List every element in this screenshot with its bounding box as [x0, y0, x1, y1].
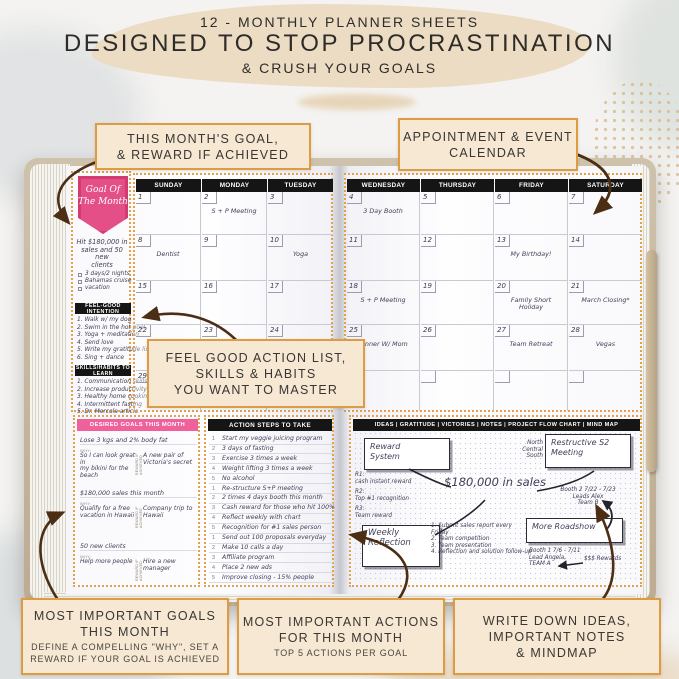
calendar-cell: 26 — [421, 325, 494, 371]
reward-line: Bahamas cruise — [78, 278, 132, 285]
skills-title: SKILLS/HABITS TO LEARN — [75, 365, 131, 377]
calendar-cell: 15 — [136, 281, 201, 325]
goal-of-month-ribbon: Goal Of The Month — [78, 176, 128, 234]
goal-of-month-label: Goal Of The Month — [78, 184, 128, 208]
feel-good-item: 2. Swim in the hot pool — [77, 325, 132, 333]
calendar-cell: 10Yoga — [268, 235, 333, 281]
action-step-row: 5Recognition for #1 sales person — [209, 524, 333, 534]
calendar-cell: 18S + P Meeting — [347, 281, 420, 325]
reward-line-text: Bahamas cruise — [85, 278, 131, 285]
calendar-cell: 16 — [202, 281, 267, 325]
calendar-date: 26 — [421, 325, 436, 337]
calendar-cell: 21March Closing* — [569, 281, 642, 325]
callout-most-important-goals-sub: DEFINE A COMPELLING "WHY", SET A REWARD … — [30, 642, 220, 665]
action-step-text: Cash reward for those who hit 100% — [222, 504, 335, 511]
header-line2: DESIGNED TO STOP PROCRASTINATION — [0, 30, 679, 58]
action-step-number: 4 — [212, 565, 215, 571]
action-step-number: 2 — [212, 545, 215, 551]
skills-item: 1. Communication skills — [77, 379, 132, 387]
calendar-date: 11 — [347, 235, 362, 247]
action-step-text: No alcohol — [222, 475, 255, 482]
calendar-cell: 7 — [569, 192, 642, 235]
goal-reward-list: 3 days/2 nightsBahamas cruisevacation — [78, 271, 132, 293]
calendar-date: 12 — [421, 235, 436, 247]
skills-item: 4. Intermittent fasting — [77, 402, 132, 410]
feel-good-title: FEEL-GOOD INTENTION — [75, 303, 131, 315]
calendar-cell: 43 Day Booth — [347, 192, 420, 235]
callout-most-important-actions: MOST IMPORTANT ACTIONS FOR THIS MONTH TO… — [237, 598, 445, 675]
action-step-number: 3 — [212, 505, 215, 511]
calendar-note: My Birthday! — [496, 251, 566, 258]
action-step-number: 5 — [212, 525, 215, 531]
callout-most-important-goals-title: MOST IMPORTANT GOALS THIS MONTH — [34, 608, 216, 640]
action-step-row: 3Exercise 3 times a week — [209, 455, 333, 465]
action-step-row: 2Make 10 calls a day — [209, 544, 333, 554]
calendar-date — [569, 371, 584, 383]
calendar-note: Dentist — [137, 251, 199, 258]
header-line3: & CRUSH YOUR GOALS — [0, 60, 679, 76]
reward-line-text: 3 days/2 nights — [85, 271, 130, 278]
action-step-text: Re-structure S+P meeting — [222, 485, 303, 492]
reward-line: vacation — [78, 285, 132, 292]
action-step-text: Weight lifting 3 times a week — [222, 465, 313, 472]
calendar-date: 8 — [136, 235, 151, 247]
action-step-row: 5No alcohol — [209, 475, 333, 485]
feel-good-item: 1. Walk w/ my dog — [77, 317, 132, 325]
callout-most-important-actions-title: MOST IMPORTANT ACTIONS FOR THIS MONTH — [243, 614, 439, 646]
mindmap-reward-notes: R1: cash instant rewardR2: Top #1 recogn… — [355, 472, 440, 524]
calendar-cell: 28Vegas — [569, 325, 642, 371]
calendar-date: 13 — [495, 235, 510, 247]
goal-text: Lose 3 kgs and 2% body fat — [80, 437, 197, 445]
calendar-note: S + P Meeting — [348, 297, 418, 304]
checkbox-icon — [78, 287, 82, 291]
calendar-date: 23 — [202, 325, 217, 337]
goal-why-text: Help more people — [80, 559, 142, 566]
calendar-day-header: SUNDAY — [136, 179, 201, 192]
mindmap-reward-system-box: Reward System — [364, 438, 450, 470]
calendar-day-header: WEDNESDAY — [347, 179, 420, 192]
calendar-date: 6 — [495, 192, 510, 204]
goal-reward-text: Hire a new manager — [143, 558, 199, 572]
action-step-number: 5 — [212, 476, 215, 482]
callout-appointment-calendar: APPOINTMENT & EVENT CALENDAR — [398, 118, 578, 171]
action-step-row: 3Cash reward for those who hit 100% — [209, 504, 333, 514]
callout-appointment-calendar-text: APPOINTMENT & EVENT CALENDAR — [403, 129, 573, 161]
calendar-right-page: WEDNESDAYTHURSDAYFRIDAYSATURDAY43 Day Bo… — [344, 173, 642, 412]
action-step-row: 22 times 4 days booth this month — [209, 494, 333, 504]
skills-list: 1. Communication skills2. Increase produ… — [77, 379, 132, 417]
calendar-cell: 9 — [202, 235, 267, 281]
goal-why-text: So I can look great in my bikini for the… — [80, 453, 142, 479]
calendar-cell — [495, 371, 568, 411]
calendar-date: 14 — [569, 235, 584, 247]
calendar-note: Yoga — [269, 251, 332, 258]
month-goal-text: Hit $180,000 in sales and 50 new clients — [74, 239, 130, 269]
calendar-date: 3 — [268, 192, 283, 204]
calendar-date: 4 — [347, 192, 362, 204]
action-step-text: Exercise 3 times a week — [222, 455, 297, 462]
calendar-cell: 19 — [421, 281, 494, 325]
mindmap-title: IDEAS | GRATITUDE | VICTORIES | NOTES | … — [375, 422, 618, 428]
calendar-note: Vegas — [570, 341, 641, 348]
action-steps-section: ACTION STEPS TO TAKE 1Start my veggie ju… — [204, 415, 334, 587]
calendar-date: 18 — [347, 281, 362, 293]
mindmap-reward-note: R3: Team reward — [355, 506, 440, 519]
calendar-date: 21 — [569, 281, 584, 293]
action-step-row: 1Send out 100 proposals everyday — [209, 534, 333, 544]
reward-line-text: vacation — [85, 285, 110, 292]
calendar-date: 20 — [495, 281, 510, 293]
action-step-row: 3Affiliate program — [209, 554, 333, 564]
callout-feel-good-list: FEEL GOOD ACTION LIST, SKILLS & HABITS Y… — [147, 339, 365, 408]
action-step-row: 1Re-structure S+P meeting — [209, 485, 333, 495]
action-step-number: 2 — [212, 446, 215, 452]
goal-reward-text: Company trip to Hawaii — [143, 505, 199, 519]
mindmap-section: IDEAS | GRATITUDE | VICTORIES | NOTES | … — [349, 415, 642, 587]
action-step-number: 3 — [212, 456, 215, 462]
checkbox-icon — [78, 280, 82, 284]
calendar-note: March Closing* — [570, 297, 641, 304]
mindmap-weekly-reflection-box: Weekly Reflection — [362, 525, 440, 567]
calendar-date: 17 — [268, 281, 283, 293]
calendar-cell: 13My Birthday! — [495, 235, 568, 281]
callout-this-months-goal-text: THIS MONTH'S GOAL, & REWARD IF ACHIEVED — [117, 131, 289, 163]
calendar-date: 22 — [136, 325, 151, 337]
action-step-number: 1 — [212, 535, 215, 541]
action-step-text: Start my veggie juicing program — [222, 435, 322, 442]
calendar-date — [495, 371, 510, 383]
goal-reward-text: A new pair of Victoria's secret — [143, 452, 199, 466]
skills-title-bar: SKILLS/HABITS TO LEARN — [75, 365, 131, 376]
action-step-row: 4Weight lifting 3 times a week — [209, 465, 333, 475]
skills-item: 2. Increase productivity — [77, 387, 132, 395]
callout-most-important-actions-sub: TOP 5 ACTIONS PER GOAL — [274, 648, 408, 660]
desired-goals-section: DESIRED GOALS THIS MONTH Lose 3 kgs and … — [73, 415, 200, 587]
action-step-number: 1 — [212, 436, 215, 442]
action-step-row: 1Start my veggie juicing program — [209, 435, 333, 445]
brush-smudge — [298, 94, 416, 110]
mindmap-booth2-note: Booth 2 7/22 - 7/23 Leads Alex Team B — [542, 487, 634, 507]
action-step-row: 5Improve closing - 15% people — [209, 574, 333, 584]
checkbox-icon — [78, 273, 82, 277]
page-stack-left — [30, 164, 70, 600]
action-step-row: 23 days of fasting — [209, 445, 333, 455]
action-step-text: Affiliate program — [222, 554, 274, 561]
calendar-date — [421, 371, 436, 383]
callout-write-down-ideas-text: WRITE DOWN IDEAS, IMPORTANT NOTES & MIND… — [483, 613, 631, 661]
action-step-row: 4Place 2 new ads — [209, 564, 333, 574]
action-step-text: Make 10 calls a day — [222, 544, 283, 551]
reward-if-achieved-label: REWARD IF ACHIEVED — [135, 451, 143, 475]
calendar-note: S + P Meeting — [203, 208, 265, 215]
goal-why-text: Qualify for a free vacation in Hawaii — [80, 506, 142, 519]
action-step-text: Place 2 new ads — [222, 564, 272, 571]
feel-good-item: 6. Sing + dance — [77, 355, 132, 363]
reward-if-achieved-label: REWARD IF ACHIEVED — [135, 504, 143, 528]
callout-this-months-goal: THIS MONTH'S GOAL, & REWARD IF ACHIEVED — [95, 123, 311, 170]
calendar-date: 7 — [569, 192, 584, 204]
action-step-text: Reflect weekly with chart — [222, 514, 301, 521]
calendar-cell — [569, 371, 642, 411]
sidebar-section: Goal Of The Month Hit $180,000 in sales … — [71, 171, 131, 412]
calendar-day-header: THURSDAY — [421, 179, 494, 192]
action-step-text: Send out 100 proposals everyday — [222, 534, 326, 541]
action-step-number: 4 — [212, 466, 215, 472]
calendar-date: 16 — [202, 281, 217, 293]
calendar-cell: 6 — [495, 192, 568, 235]
calendar-date: 25 — [347, 325, 362, 337]
calendar-day-header: TUESDAY — [268, 179, 333, 192]
calendar-cell: 20Family Short Holiday — [495, 281, 568, 325]
calendar-day-header: SATURDAY — [569, 179, 642, 192]
action-step-number: 4 — [212, 515, 215, 521]
reward-line: 3 days/2 nights — [78, 271, 132, 278]
calendar-date: 2 — [202, 192, 217, 204]
action-step-row: 4Reflect weekly with chart — [209, 514, 333, 524]
calendar-date: 5 — [421, 192, 436, 204]
calendar-cell: 8Dentist — [136, 235, 201, 281]
calendar-date: 9 — [202, 235, 217, 247]
calendar-date: 1 — [136, 192, 151, 204]
feel-good-item: 3. Yoga + meditation — [77, 332, 132, 340]
feel-good-item: 4. Send love — [77, 340, 132, 348]
feel-good-list: 1. Walk w/ my dog2. Swim in the hot pool… — [77, 317, 132, 363]
mindmap-weekly-list: 1. Submit sales report every Friday 2. T… — [431, 523, 533, 556]
calendar-date: 24 — [268, 325, 283, 337]
action-step-text: Improve closing - 15% people — [222, 574, 314, 581]
calendar-cell: 12 — [421, 235, 494, 281]
calendar-date: 28 — [569, 325, 584, 337]
mindmap-roadshow-box: More Roadshow — [526, 518, 623, 543]
calendar-note: Team Retreat — [496, 341, 566, 348]
calendar-date: 15 — [136, 281, 151, 293]
goal-text: 50 new clients — [80, 543, 197, 551]
calendar-cell: 14 — [569, 235, 642, 281]
calendar-date: 19 — [421, 281, 436, 293]
calendar-date: 10 — [268, 235, 283, 247]
action-step-text: Recognition for #1 sales person — [222, 524, 321, 531]
calendar-cell — [421, 371, 494, 411]
calendar-day-header: FRIDAY — [495, 179, 568, 192]
action-step-number: 5 — [212, 575, 215, 581]
calendar-note: Family Short Holiday — [496, 297, 566, 311]
feel-good-title-bar: FEEL-GOOD INTENTION — [75, 303, 131, 314]
mindmap-rewards-note: $$$ Rewards — [584, 556, 639, 563]
callout-most-important-goals: MOST IMPORTANT GOALS THIS MONTH DEFINE A… — [21, 598, 229, 675]
mindmap-reward-note: R2: Top #1 recognition — [355, 489, 440, 502]
action-step-number: 2 — [212, 495, 215, 501]
calendar-day-header: MONDAY — [202, 179, 267, 192]
feel-good-item: 5. Write my gratitude list — [77, 347, 132, 355]
product-infographic: { "header": { "line1": "12 - MONTHLY PLA… — [0, 0, 679, 679]
callout-write-down-ideas: WRITE DOWN IDEAS, IMPORTANT NOTES & MIND… — [453, 598, 661, 675]
desired-goals-groups: Lose 3 kgs and 2% body fatWHY:So I can l… — [75, 417, 198, 585]
calendar-cell: 3 — [268, 192, 333, 235]
mindmap-reward-note: R1: cash instant reward — [355, 472, 440, 485]
calendar-cell: 2S + P Meeting — [202, 192, 267, 235]
action-step-text: 3 days of fasting — [222, 445, 274, 452]
callout-feel-good-list-text: FEEL GOOD ACTION LIST, SKILLS & HABITS Y… — [166, 350, 347, 398]
calendar-cell: 17 — [268, 281, 333, 325]
mindmap-center-goal: $180,000 in sales — [439, 475, 551, 489]
action-step-number: 3 — [212, 555, 215, 561]
calendar-cell: 1 — [136, 192, 201, 235]
calendar-note: 3 Day Booth — [348, 208, 418, 215]
header-line1: 12 - MONTHLY PLANNER SHEETS — [0, 14, 679, 30]
action-step-number: 1 — [212, 486, 215, 492]
mindmap-title-bar: IDEAS | GRATITUDE | VICTORIES | NOTES | … — [353, 419, 640, 431]
action-steps-rows: 1Start my veggie juicing program23 days … — [206, 417, 332, 585]
calendar-cell: 5 — [421, 192, 494, 235]
reward-if-achieved-label: REWARD IF ACHIEVED — [135, 557, 143, 581]
goal-text: $180,000 sales this month — [80, 490, 197, 498]
skills-item: 3. Healthy home cooking — [77, 394, 132, 402]
calendar-cell: 11 — [347, 235, 420, 281]
mindmap-restructure-box: Restructive S2 Meeting — [545, 434, 631, 468]
calendar-date: 27 — [495, 325, 510, 337]
elastic-band — [646, 250, 657, 472]
action-step-text: 2 times 4 days booth this month — [222, 494, 323, 501]
calendar-cell: 27Team Retreat — [495, 325, 568, 371]
mindmap-region-note: North Central South — [511, 440, 543, 460]
